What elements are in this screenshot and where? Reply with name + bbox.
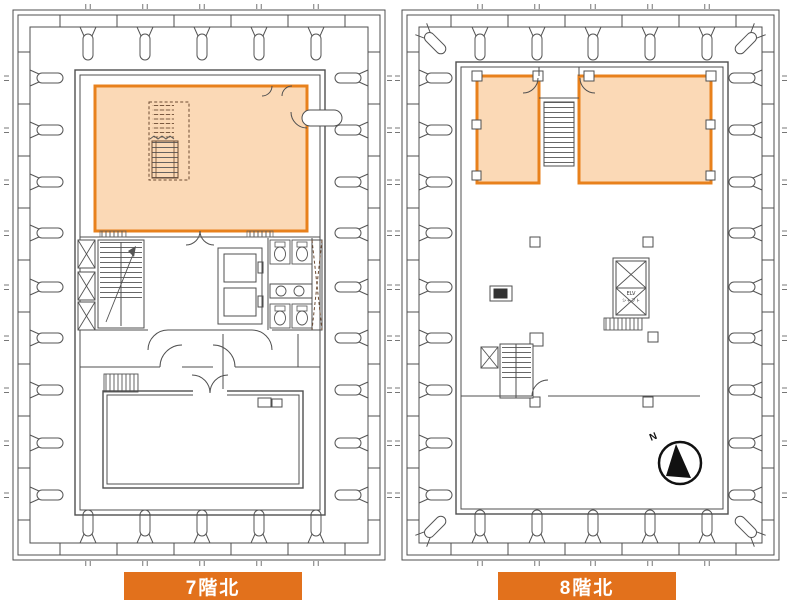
floor-plan-canvas: ELV シャフト N	[0, 0, 789, 602]
floor-plan-figure: ELV シャフト N 7階北 8階北	[0, 0, 789, 602]
floor-label-8f: 8階北	[498, 572, 676, 600]
elv-shaft-label-line1: ELV	[627, 291, 636, 297]
floor-plan-7f-drawing	[4, 4, 392, 566]
highlight-region-8f-right	[579, 76, 711, 183]
core-stairs-8f	[461, 333, 700, 398]
elevators-7f	[218, 248, 263, 324]
core-7f	[78, 231, 322, 350]
floor-label-7f: 7階北	[124, 572, 302, 600]
shaft-ladder	[604, 318, 642, 330]
floor-label-7f-text: 7階北	[186, 573, 241, 600]
north-arrow-icon: N	[648, 431, 701, 484]
lower-rooms-7f	[80, 334, 320, 488]
floor-label-8f-text: 8階北	[560, 573, 615, 600]
core-stairs-7f	[98, 240, 144, 328]
service-box-8f	[490, 286, 512, 301]
elv-shaft-8f: ELV シャフト	[604, 258, 658, 342]
restrooms-7f	[268, 238, 312, 330]
north-label: N	[648, 431, 659, 444]
highlight-region-8f-left	[477, 76, 539, 183]
service-shafts-7f	[78, 240, 95, 330]
floor-plan-8f-drawing: ELV シャフト N	[395, 4, 787, 566]
highlight-region-7f	[95, 86, 307, 231]
elv-shaft-label-line2: シャフト	[622, 298, 640, 304]
